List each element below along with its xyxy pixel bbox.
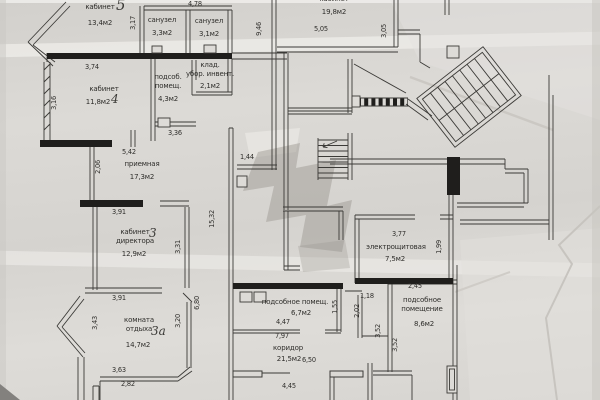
dim-3-52a: 3,52 xyxy=(374,324,382,338)
room-number-3: 3 xyxy=(149,226,157,240)
dim-3-16: 3,16 xyxy=(50,96,58,110)
room-label-storage: клад. убор. инвент. xyxy=(182,61,238,79)
dim-9-46: 9,46 xyxy=(255,22,263,36)
room-area-storage: 2,1м2 xyxy=(190,82,230,91)
room-area-rest: 14,7м2 xyxy=(118,341,158,350)
dim-3-91b: 3,91 xyxy=(112,294,126,302)
dim-2-82: 2,82 xyxy=(121,380,135,388)
room-area-utility43: 4,3м2 xyxy=(150,95,186,104)
watermark-logo xyxy=(243,128,352,272)
dim-4-45: 4,45 xyxy=(282,382,296,390)
room-label-office4: кабинет xyxy=(82,85,126,94)
room-number-3a: 3а xyxy=(151,324,166,338)
dim-5-05: 5,05 xyxy=(314,25,328,33)
room-label-wc2: санузел xyxy=(191,17,227,26)
dim-15-32: 15,32 xyxy=(208,210,216,228)
room-label-office-topright: кабинет xyxy=(312,0,356,4)
room-label-corridor: коридор xyxy=(266,344,310,353)
dim-3-20: 3,20 xyxy=(174,314,182,328)
room-area-office-topright: 19,8м2 xyxy=(312,8,356,17)
room-area-office4: 11,8м2 xyxy=(78,98,118,107)
dim-1-99: 1,99 xyxy=(435,240,443,254)
room-label-electrical: электрощитовая xyxy=(362,243,430,252)
dim-3-74: 3,74 xyxy=(85,63,99,71)
dim-2-06: 2,06 xyxy=(94,160,102,174)
dim-6-80: 6,80 xyxy=(193,296,201,310)
dim-4-47: 4,47 xyxy=(276,318,290,326)
dim-3-05: 3,05 xyxy=(380,24,388,38)
dim-3-91a: 3,91 xyxy=(112,208,126,216)
dim-7-97: 7,97 xyxy=(275,332,289,340)
room-label-reception: приемная xyxy=(118,160,166,169)
room-area-utility86: 8,6м2 xyxy=(406,320,442,329)
floorplan-drawing xyxy=(0,0,600,400)
dim-3-36: 3,36 xyxy=(168,129,182,137)
stair-direction-arrow xyxy=(323,141,337,148)
dim-2-45: 2,45 xyxy=(408,282,422,290)
dim-3-31: 3,31 xyxy=(174,240,182,254)
room-area-wc1: 3,3м2 xyxy=(147,29,177,38)
room-area-electrical: 7,5м2 xyxy=(380,255,410,264)
dim-5-42: 5,42 xyxy=(122,148,136,156)
room-label-wc1: санузел xyxy=(144,16,180,25)
dim-4-78: 4,78 xyxy=(188,0,202,8)
dim-3-43: 3,43 xyxy=(91,316,99,330)
dim-6-50: 6,50 xyxy=(302,356,316,364)
room-label-utility86: подсобное помещение xyxy=(396,296,448,314)
dim-2-02: 2,02 xyxy=(353,304,361,318)
room-area-utility67: 6,7м2 xyxy=(286,309,316,318)
dim-1-55: 1,55 xyxy=(331,300,339,314)
dim-3-63: 3,63 xyxy=(112,366,126,374)
room-area-director: 12,9м2 xyxy=(114,250,154,259)
room-label-utility67: подсобное помещ. xyxy=(250,298,340,307)
room-label-office5: кабинет xyxy=(80,3,120,12)
dim-1-18: 1,18 xyxy=(360,292,374,300)
room-number-5: 5 xyxy=(116,0,126,14)
walls-thick-hollow xyxy=(233,371,363,377)
dim-1-44: 1,44 xyxy=(240,153,254,161)
room-area-office5: 13,4м2 xyxy=(80,19,120,28)
room-area-reception: 17,3м2 xyxy=(120,173,164,182)
dim-3-52b: 3,52 xyxy=(391,338,399,352)
room-area-wc2: 3,1м2 xyxy=(194,30,224,39)
dim-3-17: 3,17 xyxy=(129,16,137,30)
floor-plan-photo: кабинет 5 13,4м2 санузел 3,3м2 санузел 3… xyxy=(0,0,600,400)
dim-3-77: 3,77 xyxy=(392,230,406,238)
